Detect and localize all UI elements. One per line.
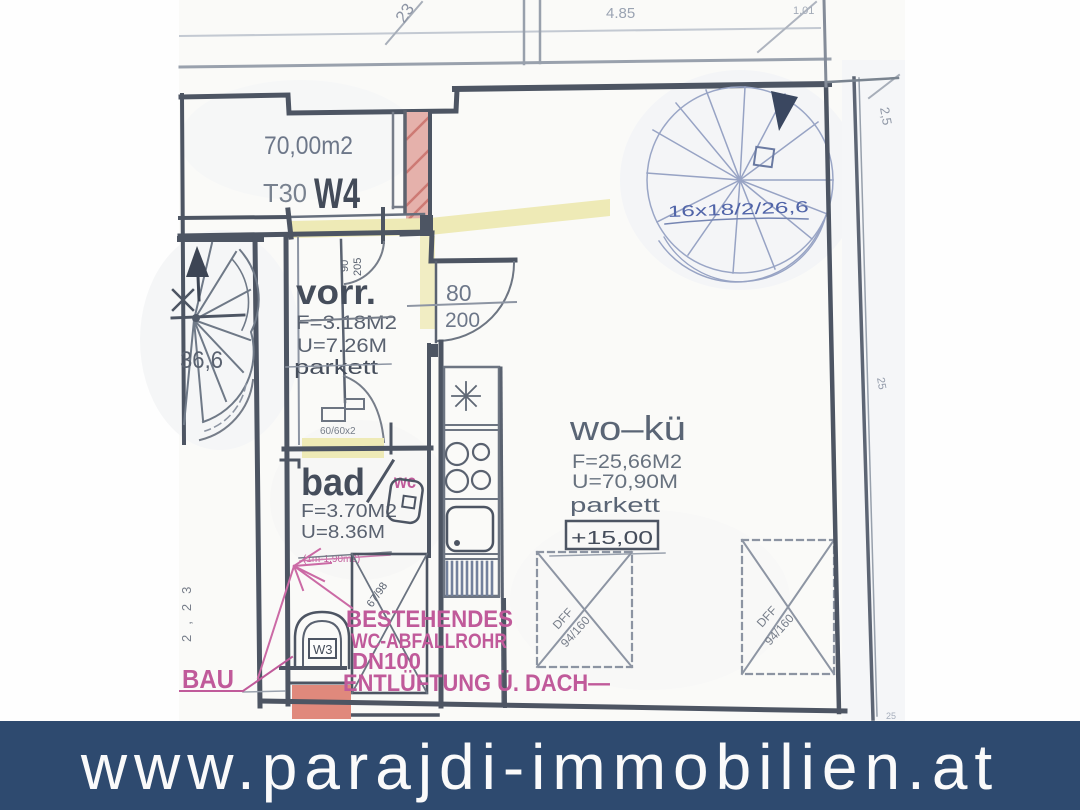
svg-text:1,01: 1,01 <box>793 5 814 17</box>
svg-text:200: 200 <box>445 309 480 332</box>
svg-text:U=8.36M: U=8.36M <box>301 522 385 542</box>
svg-text:bad: bad <box>301 462 365 504</box>
svg-text:BESTEHENDES: BESTEHENDES <box>346 606 513 633</box>
svg-text:4.85: 4.85 <box>606 5 635 22</box>
svg-text:25: 25 <box>886 711 896 721</box>
svg-text:T30: T30 <box>263 178 307 208</box>
svg-text:wc: wc <box>393 472 416 493</box>
svg-text:F=3.18M2: F=3.18M2 <box>296 313 397 334</box>
svg-text:W4: W4 <box>314 170 360 218</box>
svg-text:wo–kü: wo–kü <box>569 410 686 448</box>
svg-text:80: 80 <box>446 280 472 306</box>
svg-text:+15,00: +15,00 <box>571 528 653 548</box>
svg-text:U=70,90M: U=70,90M <box>572 472 678 493</box>
svg-text:90: 90 <box>339 260 351 272</box>
svg-text:25: 25 <box>874 376 888 390</box>
svg-text:U=7.26M: U=7.26M <box>297 336 387 357</box>
svg-text:F=3.70M2: F=3.70M2 <box>301 501 397 521</box>
svg-text:parkett: parkett <box>294 357 379 379</box>
svg-text:ENTLÜFTUNG Ü. DACH—: ENTLÜFTUNG Ü. DACH— <box>343 670 610 697</box>
svg-text:70,00m2: 70,00m2 <box>264 132 353 160</box>
svg-text:36,6: 36,6 <box>180 347 223 374</box>
svg-text:vorr.: vorr. <box>296 273 376 312</box>
svg-text:60/60x2: 60/60x2 <box>320 426 356 437</box>
svg-text:BAU: BAU <box>182 664 234 694</box>
svg-text:2,23: 2,23 <box>179 577 194 642</box>
svg-text:W3: W3 <box>313 642 333 657</box>
svg-text:2,5: 2,5 <box>877 106 895 126</box>
svg-text:F=25,66M2: F=25,66M2 <box>572 452 682 473</box>
svg-text:parkett: parkett <box>570 495 661 517</box>
